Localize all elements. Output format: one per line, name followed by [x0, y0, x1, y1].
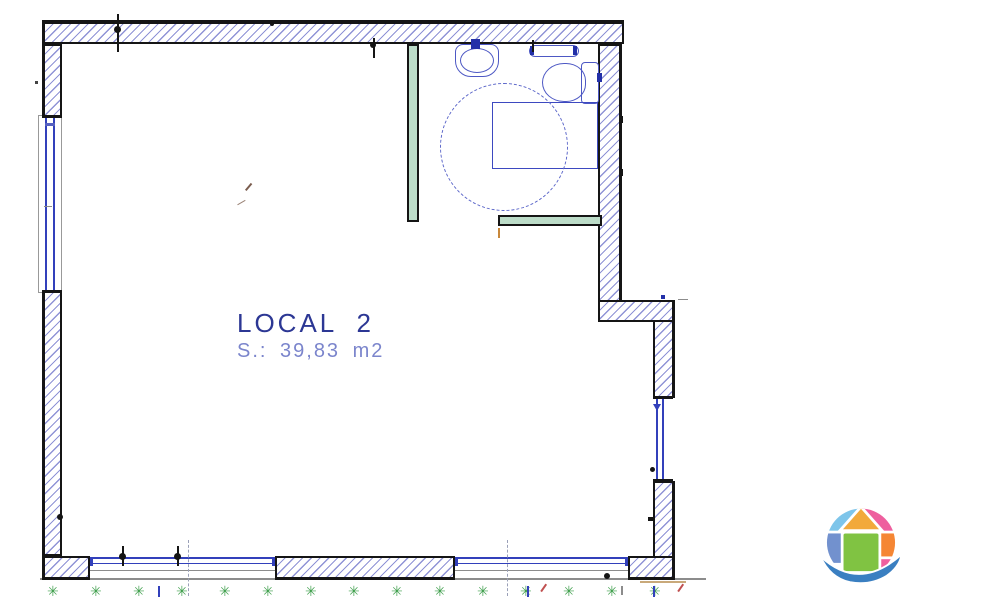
ground-blue-tick: [527, 586, 529, 597]
tick-step-corner: [661, 295, 665, 299]
window-bottom2-glass-line-1: [455, 557, 628, 559]
door-stop-mark: [597, 73, 602, 82]
grab-bar: [529, 45, 579, 57]
plant-symbol: ✳: [305, 584, 317, 600]
axis-dashed-line: [188, 540, 189, 596]
wall-right-middle: [653, 320, 675, 398]
window-left-mid-tick: [44, 206, 52, 207]
plant-symbol: ✳: [176, 584, 188, 600]
room-label: LOCAL 2: [237, 308, 374, 339]
sink-tap-icon: [471, 39, 480, 49]
tick-right-lower: [648, 517, 653, 521]
logo: [814, 504, 908, 596]
window-left-glass-line-1: [45, 118, 47, 290]
ground-blue-tick: [158, 586, 160, 597]
ground-gray-tick: [621, 586, 623, 595]
wall-left-upper: [42, 44, 62, 117]
plant-symbol: ✳: [391, 584, 403, 600]
sink-basin: [460, 48, 494, 73]
wall-pier-bottom-middle: [275, 556, 455, 580]
swing-direction-arrow-icon: [653, 404, 661, 411]
tan-grade-line: [640, 581, 686, 583]
toilet-bowl: [542, 63, 586, 102]
tick-top-3: [373, 38, 375, 58]
plant-symbol: ✳: [520, 584, 532, 600]
plant-symbol: ✳: [133, 584, 145, 600]
wall-pier-bottom-left: [42, 556, 90, 580]
tick-right-wall-2: [619, 169, 623, 176]
wall-pier-bottom-right: [628, 556, 675, 580]
step-extension-dash: [678, 299, 688, 300]
stray-mark-1: [245, 183, 252, 191]
plant-symbol: ✳: [348, 584, 360, 600]
plant-symbol: ✳: [90, 584, 102, 600]
tick-bottom-1-dot: [119, 553, 126, 560]
partition-vertical: [407, 44, 419, 222]
tick-top-1-dot: [114, 26, 121, 33]
window-bottom1-glass-line-1: [90, 557, 275, 559]
plant-symbol: ✳: [606, 584, 618, 600]
window-bottom1-glass-line-2: [90, 563, 275, 564]
tick-bottom-2-dot: [174, 553, 181, 560]
window-bottom2-glass-line-2: [455, 563, 628, 564]
wall-right-lower: [653, 481, 675, 558]
tick-left-wall-dot: [57, 514, 63, 520]
wheelchair-turning-circle: [440, 83, 568, 211]
tick-top-4: [532, 40, 534, 52]
ground-red-slash: [540, 584, 546, 592]
tick-top-2-dot: [270, 22, 274, 26]
window-bottom2-post-left: [455, 557, 458, 566]
window-bottom1-post-left: [90, 557, 93, 566]
tick-right-wall-1: [619, 116, 623, 123]
window-left-glass-line-2: [53, 118, 55, 290]
tick-top-3-dot: [370, 42, 376, 48]
plant-symbol: ✳: [563, 584, 575, 600]
door-jamb-mark: [498, 228, 500, 238]
logo-center: [844, 533, 879, 571]
window-bottom1-outer-line: [90, 570, 275, 571]
tick-bottom-right-dot: [604, 573, 610, 579]
room-area-label: S.: 39,83 m2: [237, 340, 384, 363]
window-right-glass-line-2: [662, 399, 664, 479]
plant-symbol: ✳: [47, 584, 59, 600]
window-bottom2-outer-line: [455, 570, 628, 571]
partition-horizontal: [498, 215, 602, 226]
grab-bar-end-right: [573, 46, 577, 55]
plant-symbol: ✳: [477, 584, 489, 600]
stray-mark-2: [237, 200, 245, 206]
window-left-opening-mark: [45, 123, 55, 126]
plant-symbol: ✳: [219, 584, 231, 600]
ground-blue-tick: [653, 586, 655, 597]
window-right-glass-line-1: [656, 399, 658, 479]
floor-plan-canvas: LOCAL 2 S.: 39,83 m2 ✳✳✳✳✳✳✳✳✳✳✳✳✳✳✳: [0, 0, 1000, 600]
wall-step: [598, 300, 675, 322]
stray-dot: [35, 81, 38, 84]
logo-right: [881, 533, 904, 556]
door-reference-dot: [650, 467, 655, 472]
tick-top-1: [117, 14, 119, 52]
ground-red-slash: [677, 584, 683, 592]
plant-symbol: ✳: [262, 584, 274, 600]
wall-top: [42, 20, 624, 44]
plant-symbol: ✳: [434, 584, 446, 600]
axis-dashed-line: [507, 540, 508, 596]
window-left-frame: [38, 115, 62, 293]
